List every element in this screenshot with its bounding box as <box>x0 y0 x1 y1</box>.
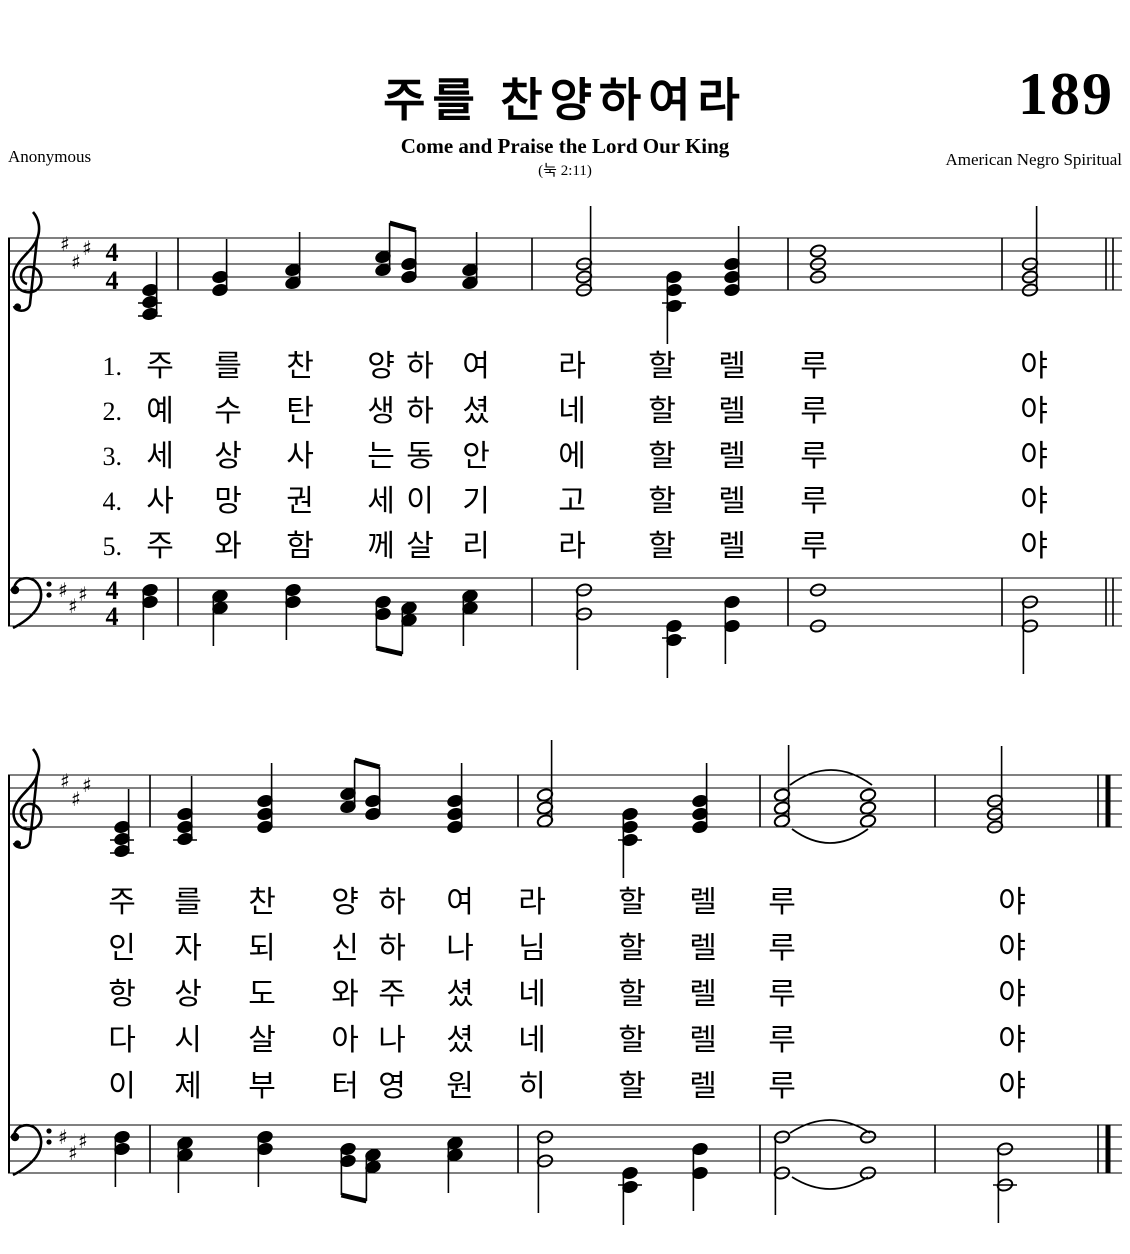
svg-text:♯: ♯ <box>78 1129 88 1153</box>
lyric-syllable: 야 <box>1012 344 1056 389</box>
note-chord <box>662 270 686 344</box>
treble-staff-system-2: ♯♯♯ <box>0 735 1130 895</box>
lyric-syllable: 기 <box>454 479 498 524</box>
lyric-syllable: 사 <box>138 479 182 524</box>
treble-clef-icon <box>14 749 42 848</box>
time-signature: 44 <box>106 576 119 631</box>
system-brace-line <box>8 775 10 1173</box>
svg-text:♯: ♯ <box>60 232 70 256</box>
lyric-syllable: 라 <box>550 344 594 389</box>
lyric-syllable: 나 <box>438 926 482 972</box>
lyric-syllable: 하 <box>398 389 442 434</box>
lyric-syllable: 히 <box>510 1064 554 1110</box>
lyric-syllable: 렐 <box>681 1064 725 1110</box>
lyric-syllable: 루 <box>760 1018 804 1064</box>
lyric-syllable: 주 <box>138 524 182 569</box>
notes <box>113 1130 1017 1225</box>
note-chord <box>993 1142 1017 1223</box>
note-chord <box>536 1130 553 1213</box>
lyric-syllable: 망 <box>206 479 250 524</box>
lyric-column: 양신와아터 <box>323 880 367 1110</box>
note-chord <box>374 223 417 284</box>
lyric-syllable: 와 <box>206 524 250 569</box>
note-chord <box>339 760 381 821</box>
note-chord <box>113 1130 130 1187</box>
treble-clef-icon <box>14 212 42 311</box>
lyric-syllable: 루 <box>760 880 804 926</box>
lyric-syllable: 하 <box>370 926 414 972</box>
lyric-syllable: 할 <box>610 1018 654 1064</box>
lyric-syllable: 루 <box>792 389 836 434</box>
lyric-syllable: 할 <box>640 389 684 434</box>
note-chord <box>691 1142 708 1211</box>
note-chord <box>284 583 301 640</box>
staff-lines <box>8 1125 1122 1173</box>
verse-number: 1. <box>86 344 122 389</box>
note-chord <box>446 763 463 834</box>
note-chord <box>461 232 478 290</box>
lyric-column: 주인항다이 <box>100 880 144 1110</box>
lyric-syllable: 시 <box>166 1018 210 1064</box>
lyric-syllable: 여 <box>438 880 482 926</box>
verse-number-column: 1.2.3.4.5. <box>86 344 122 569</box>
system-brace-line <box>8 238 10 626</box>
lyric-column: 라님네네히 <box>510 880 554 1110</box>
lyric-column: 를수상망와 <box>206 344 250 569</box>
lyric-syllable: 할 <box>640 524 684 569</box>
note-chord <box>446 1136 463 1193</box>
note-chord <box>618 807 642 878</box>
svg-text:♯: ♯ <box>58 578 68 602</box>
svg-text:♯: ♯ <box>71 250 81 274</box>
staff-lines <box>8 238 1122 290</box>
lyric-syllable: 할 <box>610 972 654 1018</box>
lyric-syllable: 야 <box>1012 524 1056 569</box>
note-chord <box>110 789 134 858</box>
lyric-syllable: 세 <box>359 479 403 524</box>
lyric-syllable: 함 <box>278 524 322 569</box>
note-chord <box>986 746 1003 834</box>
verse-number: 4. <box>86 479 122 524</box>
lyric-syllable: 원 <box>438 1064 482 1110</box>
lyric-syllable: 할 <box>610 880 654 926</box>
lyric-syllable: 상 <box>166 972 210 1018</box>
lyric-syllable: 양 <box>323 880 367 926</box>
lyric-syllable: 는 <box>359 434 403 479</box>
note-chord <box>723 226 740 297</box>
lyric-syllable: 권 <box>278 479 322 524</box>
svg-text:♯: ♯ <box>78 582 88 606</box>
hymn-sheet-page: 주를 찬양하여라 189 Come and Praise the Lord Ou… <box>0 0 1130 1254</box>
lyric-column: 할할할할할 <box>610 880 654 1110</box>
lyric-column: 루루루루루 <box>792 344 836 569</box>
bass-clef-icon <box>11 1125 52 1175</box>
svg-text:♯: ♯ <box>82 236 92 260</box>
lyric-syllable: 렐 <box>710 524 754 569</box>
lyric-syllable: 찬 <box>278 344 322 389</box>
note-chord <box>773 1130 790 1215</box>
note-chord <box>1021 595 1038 674</box>
lyric-syllable: 루 <box>760 926 804 972</box>
tie-arc <box>790 1120 870 1133</box>
lyric-syllable: 야 <box>990 880 1034 926</box>
note-chord <box>173 776 197 846</box>
lyric-syllable: 다 <box>100 1018 144 1064</box>
lyric-syllable: 루 <box>792 479 836 524</box>
lyricist-credit: Anonymous <box>8 147 91 167</box>
lyric-syllable: 동 <box>398 434 442 479</box>
lyric-column: 찬탄사권함 <box>278 344 322 569</box>
lyric-syllable: 라 <box>510 880 554 926</box>
verse-number: 3. <box>86 434 122 479</box>
lyric-syllable: 님 <box>510 926 554 972</box>
lyric-syllable: 렐 <box>681 1018 725 1064</box>
svg-text:4: 4 <box>106 576 119 605</box>
lyric-syllable: 상 <box>206 434 250 479</box>
lyric-syllable: 탄 <box>278 389 322 434</box>
note-chord <box>256 763 273 834</box>
staff-lines <box>8 775 1122 827</box>
lyric-syllable: 할 <box>640 344 684 389</box>
lyric-syllable: 야 <box>990 1064 1034 1110</box>
lyric-syllable: 할 <box>610 1064 654 1110</box>
lyric-syllable: 되 <box>240 926 284 972</box>
lyric-syllable: 이 <box>100 1064 144 1110</box>
lyric-syllable: 라 <box>550 524 594 569</box>
lyric-syllable: 를 <box>166 880 210 926</box>
svg-text:4: 4 <box>106 266 119 295</box>
note-chord <box>662 619 686 678</box>
note-chord <box>176 1136 193 1193</box>
lyric-syllable: 여 <box>454 344 498 389</box>
note-chord <box>773 745 790 828</box>
hymn-title: 주를 찬양하여라 <box>0 64 1130 130</box>
lyric-syllable: 할 <box>640 479 684 524</box>
note-chord <box>284 232 301 290</box>
svg-text:♯: ♯ <box>68 594 78 618</box>
note-chord <box>1021 206 1038 297</box>
lyric-syllable: 할 <box>640 434 684 479</box>
time-signature: 44 <box>106 238 119 295</box>
lyric-syllable: 터 <box>323 1064 367 1110</box>
note-chord <box>575 206 592 297</box>
lyric-syllable: 세 <box>138 434 182 479</box>
lyric-syllable: 야 <box>990 926 1034 972</box>
svg-text:♯: ♯ <box>68 1141 78 1165</box>
note-chord <box>138 252 162 321</box>
note-chord <box>536 740 553 828</box>
lyric-syllable: 렐 <box>681 926 725 972</box>
tie-arc <box>792 829 868 843</box>
lyric-syllable: 네 <box>510 1018 554 1064</box>
lyric-syllable: 루 <box>760 1064 804 1110</box>
lyric-column: 여나셨셨원 <box>438 880 482 1110</box>
note-chord <box>859 788 876 829</box>
notes <box>110 740 1004 878</box>
treble-staff-system-1: ♯♯♯44 <box>0 198 1130 358</box>
lyric-syllable: 생 <box>359 389 403 434</box>
note-chord <box>461 589 478 646</box>
lyric-syllable: 항 <box>100 972 144 1018</box>
composer-credit: American Negro Spiritual <box>945 150 1122 170</box>
verse-number: 5. <box>86 524 122 569</box>
lyric-syllable: 야 <box>1012 479 1056 524</box>
lyric-syllable: 부 <box>240 1064 284 1110</box>
lyric-syllable: 야 <box>990 1018 1034 1064</box>
lyric-syllable: 렐 <box>681 880 725 926</box>
lyric-syllable: 셨 <box>438 972 482 1018</box>
lyric-syllable: 에 <box>550 434 594 479</box>
lyric-syllable: 께 <box>359 524 403 569</box>
lyric-column: 를자상시제 <box>166 880 210 1110</box>
note-chord <box>691 763 708 834</box>
tie-arc <box>790 770 872 785</box>
note-chord <box>141 583 158 640</box>
svg-text:4: 4 <box>106 602 119 631</box>
notes <box>141 583 1038 678</box>
lyric-column: 주예세사주 <box>138 344 182 569</box>
note-chord <box>723 595 740 664</box>
key-signature: ♯♯♯ <box>58 1125 88 1165</box>
lyric-syllable: 영 <box>370 1064 414 1110</box>
lyric-syllable: 네 <box>550 389 594 434</box>
lyric-syllable: 할 <box>610 926 654 972</box>
note-chord <box>211 589 228 646</box>
lyric-column: 여셨안기리 <box>454 344 498 569</box>
svg-text:♯: ♯ <box>60 769 70 793</box>
lyric-syllable: 주 <box>100 880 144 926</box>
lyric-syllable: 살 <box>398 524 442 569</box>
lyric-syllable: 살 <box>240 1018 284 1064</box>
lyric-column: 양생는세께 <box>359 344 403 569</box>
note-chord <box>339 1142 381 1201</box>
lyric-syllable: 자 <box>166 926 210 972</box>
lyric-syllable: 야 <box>990 972 1034 1018</box>
lyric-syllable: 하 <box>398 344 442 389</box>
notes <box>138 206 1039 344</box>
lyric-syllable: 나 <box>370 1018 414 1064</box>
lyric-syllable: 루 <box>760 972 804 1018</box>
lyric-column: 라네에고라 <box>550 344 594 569</box>
bass-clef-icon <box>11 578 52 628</box>
note-chord <box>374 595 417 654</box>
lyric-syllable: 인 <box>100 926 144 972</box>
lyric-syllable: 루 <box>792 524 836 569</box>
note-chord <box>211 239 228 297</box>
lyric-column: 렐렐렐렐렐 <box>710 344 754 569</box>
hymn-number: 189 <box>1018 60 1114 129</box>
lyric-syllable: 하 <box>370 880 414 926</box>
lyric-syllable: 렐 <box>710 434 754 479</box>
key-signature: ♯♯♯ <box>58 578 88 618</box>
lyric-syllable: 렐 <box>681 972 725 1018</box>
lyric-column: 찬되도살부 <box>240 880 284 1110</box>
lyric-syllable: 제 <box>166 1064 210 1110</box>
lyric-syllable: 렐 <box>710 479 754 524</box>
lyric-syllable: 루 <box>792 344 836 389</box>
lyric-syllable: 루 <box>792 434 836 479</box>
lyric-syllable: 찬 <box>240 880 284 926</box>
lyric-syllable: 아 <box>323 1018 367 1064</box>
lyric-syllable: 수 <box>206 389 250 434</box>
lyric-syllable: 안 <box>454 434 498 479</box>
lyric-syllable: 고 <box>550 479 594 524</box>
svg-text:4: 4 <box>106 238 119 267</box>
lyric-syllable: 렐 <box>710 389 754 434</box>
lyric-syllable: 리 <box>454 524 498 569</box>
lyric-column: 하하동이살 <box>398 344 442 569</box>
lyric-syllable: 이 <box>398 479 442 524</box>
lyric-syllable: 신 <box>323 926 367 972</box>
lyric-syllable: 렐 <box>710 344 754 389</box>
svg-text:♯: ♯ <box>58 1125 68 1149</box>
lyric-syllable: 를 <box>206 344 250 389</box>
lyric-syllable: 야 <box>1012 389 1056 434</box>
lyric-column: 야야야야야 <box>1012 344 1056 569</box>
lyric-column: 루루루루루 <box>760 880 804 1110</box>
lyric-syllable: 와 <box>323 972 367 1018</box>
verse-number: 2. <box>86 389 122 434</box>
lyric-syllable: 야 <box>1012 434 1056 479</box>
svg-text:♯: ♯ <box>82 773 92 797</box>
note-chord <box>618 1166 642 1225</box>
lyric-syllable: 주 <box>138 344 182 389</box>
lyric-syllable: 양 <box>359 344 403 389</box>
lyric-column: 렐렐렐렐렐 <box>681 880 725 1110</box>
staff-lines <box>8 578 1122 626</box>
lyric-syllable: 사 <box>278 434 322 479</box>
lyric-column: 하하주나영 <box>370 880 414 1110</box>
lyric-syllable: 주 <box>370 972 414 1018</box>
lyric-column: 할할할할할 <box>640 344 684 569</box>
lyric-syllable: 셨 <box>454 389 498 434</box>
lyric-syllable: 예 <box>138 389 182 434</box>
note-chord <box>256 1130 273 1187</box>
tie-arc <box>792 1177 868 1189</box>
svg-text:♯: ♯ <box>71 787 81 811</box>
lyric-column: 야야야야야 <box>990 880 1034 1110</box>
lyric-syllable: 도 <box>240 972 284 1018</box>
lyric-syllable: 셨 <box>438 1018 482 1064</box>
lyric-syllable: 네 <box>510 972 554 1018</box>
